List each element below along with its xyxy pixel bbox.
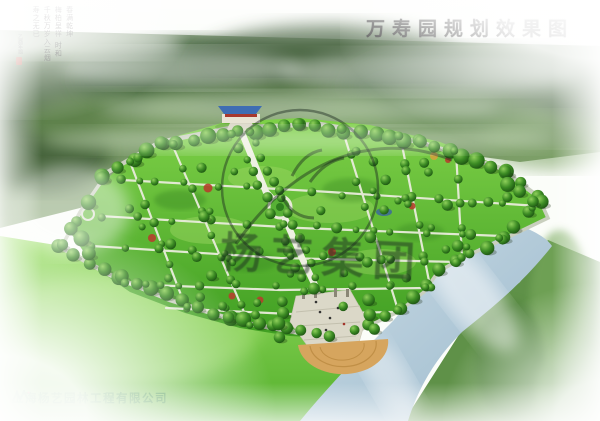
calligraphy-signature: 乙酉年题 [17, 34, 24, 54]
page-title: 万寿园规划效果图 [366, 14, 594, 41]
company-credit: 上海杨艺园林工程有限公司 [12, 390, 168, 406]
company-name: 上海杨艺园林工程有限公司 [12, 390, 168, 406]
red-seal [16, 57, 22, 65]
rendering-canvas: 万寿园规划效果图 春满乾坤 梅柏呈祥 时和 千秋万岁入云烟 寿之无已 乙酉年题 … [0, 0, 600, 421]
calligraphy-column: 春满乾坤 [64, 6, 74, 68]
calligraphy-inscription: 春满乾坤 梅柏呈祥 时和 千秋万岁入云烟 寿之无已 [30, 6, 76, 68]
calligraphy-column: 寿之无已 [31, 6, 41, 68]
calligraphy-column: 千秋万岁入云烟 [42, 6, 52, 68]
park-illustration [0, 0, 600, 421]
calligraphy-column: 梅柏呈祥 时和 [53, 6, 63, 68]
